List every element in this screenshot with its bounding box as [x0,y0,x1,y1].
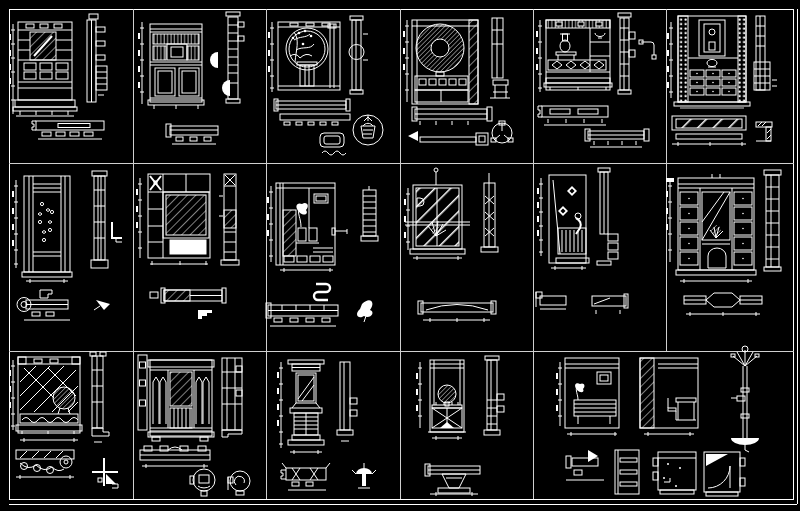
plan-view [140,446,210,468]
floral-ornament-icon [38,202,54,241]
elevation-view [278,22,340,90]
shrub-icon [53,387,75,414]
block-cell-r3c4[interactable]: Open plant stand over X-braced cabinet, … [417,356,504,496]
basket-roundel-detail [353,115,383,145]
palm-finial-detail [352,463,376,488]
elevation-view [412,20,478,104]
block-cell-r2c1[interactable]: Decorative door panel with floral motifs… [13,171,122,320]
plant-icon [296,203,307,227]
side-section-view [618,13,656,94]
elevation-view [22,176,72,283]
dimension-line [404,20,409,102]
side-section-view [87,14,107,102]
plant-icon [438,385,456,406]
grid-lines [9,9,794,499]
bowl-icon [595,33,605,38]
dimension-line [405,188,410,250]
handle-detail [320,133,346,155]
elevation-view [148,24,204,109]
plan-detail-2 [592,294,628,314]
side-section-view [219,174,239,265]
plan-view [538,106,608,125]
dimension-line [137,178,142,258]
block-cell-r1c4[interactable]: Dresser with round wreath ornament and h… [404,18,513,145]
roundel-detail-right [228,471,250,495]
fan-roundel-detail [491,121,513,143]
plan-view [166,124,218,144]
plant-icon [710,225,723,238]
plan-view [17,290,70,320]
semicircle-detail [210,52,230,96]
elevation-view [148,360,214,441]
plan-view [412,107,492,125]
block-cell-r3c1[interactable]: Garden trellis screen with shrub and scr… [10,352,118,488]
shelf-side-ladder [615,450,639,494]
desk-icon [668,398,696,420]
block-cell-r3c3[interactable]: Hall stand with mirror and slatted locke… [278,360,376,490]
plan-view [418,301,496,322]
elevation-view [148,174,210,265]
plan-view [684,293,762,316]
plan-view [672,116,746,146]
elevation-bench-panel [565,358,619,436]
corner-bracket-detail [92,458,118,488]
arched-door [708,248,726,268]
wreath-icon [416,24,464,72]
plan-detail [566,450,604,480]
elevation-view [16,357,82,442]
wedge-detail [94,300,110,310]
block-cell-r1c3[interactable]: Moon-gate display panel with plant and p… [269,16,383,155]
coat-rack [731,346,759,452]
dotted-cabinet-detail [653,452,696,494]
block-cell-r2c6[interactable]: Wardrobe with sash mirror, arched centre… [666,170,781,316]
dimension-line [10,24,15,114]
dimension-line [557,362,562,426]
block-cell-r1c5[interactable]: Display shelf with vase and fretwork ban… [537,13,656,147]
side-section-view [490,18,510,98]
dimension-line [278,362,283,448]
dimension-line [10,360,15,430]
side-section-view [597,168,618,265]
pipe-bracket-icon [639,40,656,59]
side-section-view [91,171,108,268]
side-section-view [481,173,498,252]
plan-view-2 [585,129,649,147]
elevation-view [428,360,466,440]
plan-view [16,450,74,479]
plan-view [150,288,226,303]
cad-sheet: Wardrobe elevation with hatched mirror p… [0,0,800,511]
side-section-view [222,358,242,437]
corner-bracket-detail [756,122,772,141]
side-section-view [754,16,777,90]
dimension-line [538,178,543,256]
elevation-view [276,183,347,272]
block-cell-r1c6[interactable]: Tall cabinet with display niche and nine… [668,16,777,146]
elevation-view [674,16,750,108]
block-cell-r2c3[interactable]: Feature wall with plant, hatch strip and… [266,183,378,326]
ladder-section-view [361,186,378,241]
plant-icon [575,383,584,400]
plan-view [266,303,338,326]
side-section-view [349,16,368,94]
plan-view [274,99,350,125]
drawer-bank-right [734,192,752,265]
scroll-ribbon-detail [314,284,330,300]
bowtie-motif-icon [150,176,161,190]
dimension-line [13,180,18,268]
block-cell-r1c1[interactable]: Wardrobe elevation with hatched mirror p… [10,14,107,139]
drawing-canvas: Wardrobe elevation with hatched mirror p… [0,0,800,511]
dimension-line [417,362,422,428]
plan-view [32,121,104,139]
dimension-line [537,20,542,92]
block-cell-r2c2[interactable]: Cabinet with bow-tie motif and diagonall… [137,174,239,319]
vase-icon [707,59,717,66]
side-section-view [484,356,504,435]
door-swing-cabinet-detail [704,452,745,496]
elevation-view [549,175,589,270]
plan-view [281,463,330,490]
drawer-grid [690,70,736,95]
elevation-view [13,22,77,116]
dimension-line [139,22,144,104]
vase-icon [560,34,570,52]
plan-detail-1 [536,292,566,309]
bracket-detail [112,222,122,242]
elevation-desk-panel [640,358,698,436]
leaf-detail [357,300,372,322]
dimension-line [269,22,274,92]
block-cell-r1c2[interactable]: Louvered sideboard with framed centre ti… [139,12,244,144]
dimension-line [268,186,273,262]
block-cell-r3c5[interactable]: Two wall-panel elevations with bench and… [557,346,759,496]
block-cell-r2c5[interactable]: Narrow panel with tilted tiles and radia… [536,168,628,314]
scroll-band [22,418,78,423]
elevation-view [676,174,756,283]
block-cell-r2c4[interactable]: Glazed screen with wide diagonal hatch, … [405,168,498,322]
side-section-view [90,352,109,442]
tilted-tile-icon [558,186,577,216]
side-section-view [337,362,357,441]
dimension-line [668,22,673,98]
dimension-line [666,178,674,262]
elevation-view [544,20,612,90]
drawer-bank-left [680,192,698,265]
elevation-view [288,360,324,454]
dimension-strip [138,355,147,430]
roundel-detail-left [190,469,215,496]
block-cell-r3c2[interactable]: Classical wardrobe with lancet glazed do… [138,355,250,496]
plant-icon [290,30,314,62]
plan-view [425,464,480,496]
elevation-view [405,168,470,260]
side-section-view [764,170,781,271]
rod-detail [408,131,488,145]
step-detail [198,310,212,319]
